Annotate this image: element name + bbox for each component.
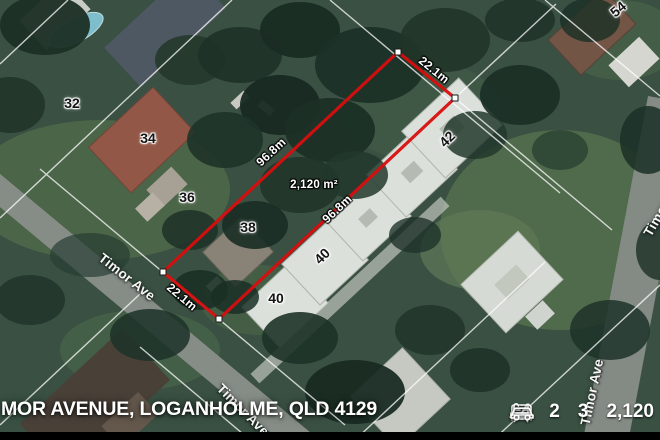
vertex-marker xyxy=(452,95,458,101)
listing-aerial-photo[interactable]: 32 34 36 38 40 40 42 54 22.1m 96.8m 96.8… xyxy=(0,0,660,440)
satellite-map-graphics xyxy=(0,0,660,440)
cars-count: 3 xyxy=(578,401,589,423)
bottom-letterbox xyxy=(0,432,660,440)
baths-count: 2 xyxy=(549,401,560,423)
listing-address: MOR AVENUE, LOGANHOLME, QLD 4129 xyxy=(1,398,377,421)
listing-stats: 4 2 3 xyxy=(508,401,659,423)
stat-baths: 2 xyxy=(549,401,565,423)
vertex-marker xyxy=(395,49,401,55)
vertex-marker xyxy=(216,316,222,322)
vertex-marker xyxy=(160,269,166,275)
land-size: 2,120 xyxy=(606,401,654,423)
tint-overlay xyxy=(0,0,660,440)
stat-area: 2,120 xyxy=(606,401,659,423)
stat-cars: 3 xyxy=(578,401,594,423)
